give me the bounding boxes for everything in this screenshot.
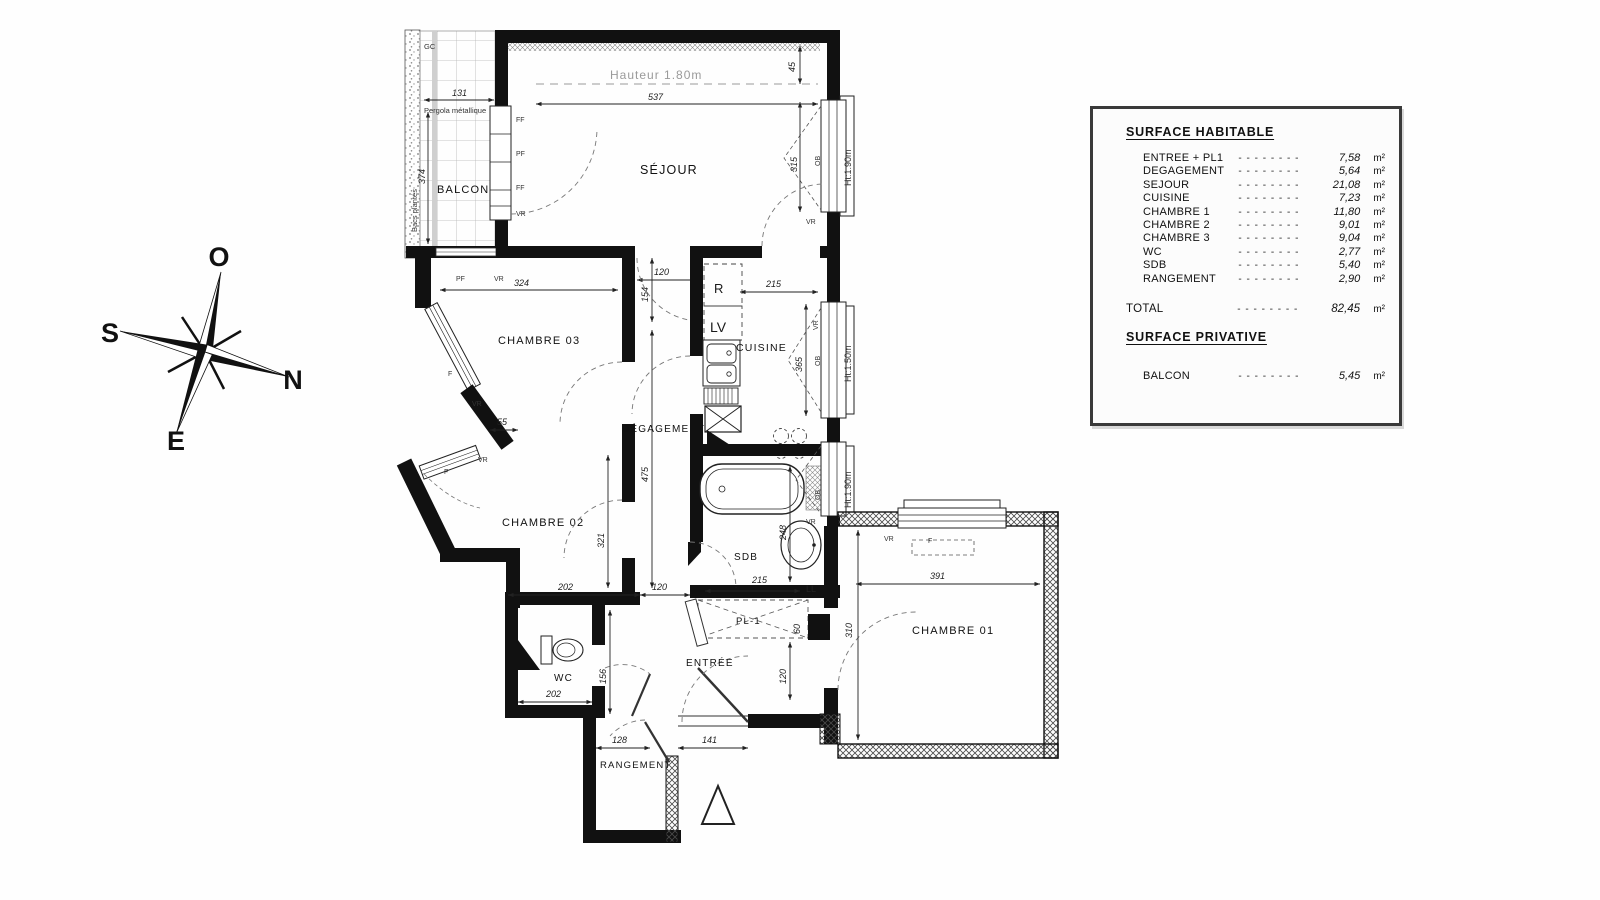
surface-rows: ENTREE + PL1- - - - - - - -7,58m² DEGAGE… [1143,152,1385,286]
area-unit: m² [1360,180,1385,191]
dim-entree-door: 141 [702,735,717,745]
leader-dashes: - - - - - - - - [1238,220,1323,231]
door-swing-arc [610,720,645,736]
entree-hall: ENTRÉE 120 141 PL-1 60 [678,599,838,824]
chambre03-label: CHAMBRE 03 [498,335,580,347]
surface-habitable-title: SURFACE HABITABLE [1126,125,1385,139]
dim-sdb-width: 215 [751,575,768,585]
area-value: 21,08 [1323,179,1360,191]
surface-table: SURFACE HABITABLE ENTREE + PL1- - - - - … [1090,106,1402,426]
dim-sejour-width: 537 [648,92,664,102]
room-name: CUISINE [1143,192,1238,204]
leader-dashes: - - - - - - - - [1238,371,1323,382]
window-height-label: Ht:1.90m [843,149,853,186]
table-row: CHAMBRE 2- - - - - - - -9,01m² [1143,219,1385,232]
rangement-room: RANGEMENT 128 [583,717,681,843]
balcony-label: BALCON [437,184,489,196]
leader-dashes: - - - - - - - - [1237,304,1322,315]
table-row: CUISINE- - - - - - - -7,23m² [1143,192,1385,205]
chambre03-angled-window [425,303,481,391]
dim-wc-height: 156 [598,669,608,684]
window-pf-label: PF [516,151,525,158]
window-ob-label: OB [815,356,822,366]
leader-dashes: - - - - - - - - [1238,180,1323,191]
compass-north-label: N [283,365,303,395]
total-label: TOTAL [1126,303,1237,315]
area-value: 11,80 [1323,206,1360,218]
area-unit: m² [1360,247,1385,258]
chambre01-window: VR F [884,500,1006,555]
sejour-label: SÉJOUR [640,162,698,177]
window-height-label: Ht:1.90m [843,471,853,508]
table-row: SDB- - - - - - - -5,40m² [1143,259,1385,272]
table-row: WC- - - - - - - -2,77m² [1143,246,1385,259]
compass-south-label: S [101,318,119,348]
washer-label: LL [806,584,816,594]
door-swing-arc [762,184,824,246]
window-vr-label: VR [478,457,488,464]
room-name: CHAMBRE 2 [1143,219,1238,231]
area-unit: m² [1360,371,1385,382]
door-swing-arc [511,128,597,214]
total-value: 82,45 [1323,303,1360,315]
fridge-label: R [714,281,723,296]
area-unit: m² [1360,193,1385,204]
planters-note: Bacs plantés [410,189,419,232]
dim-entree-height: 120 [778,669,788,684]
window-vr-label: VR [472,401,482,408]
leader-dashes: - - - - - - - - [1238,260,1323,271]
chambre02-label: CHAMBRE 02 [502,517,584,529]
chambre01-room: VR F 391 310 CHAMBRE 01 [820,500,1058,758]
dim-degagement-height: 475 [640,466,650,482]
room-name: SEJOUR [1143,179,1238,191]
door-swing-arc [560,362,622,424]
surface-privative-title: SURFACE PRIVATIVE [1126,330,1385,344]
dim-chambre01-height: 310 [844,623,854,638]
dim-pl1: 60 [792,624,802,634]
dim-rangement-width: 128 [612,735,627,745]
window-ff-label: FF [516,117,525,124]
room-name: DEGAGEMENT [1143,165,1238,177]
hauteur-note: Hauteur 1.80m [610,68,702,82]
window-pf-label: PF [456,276,465,283]
dim-cuisine-width: 215 [765,279,782,289]
room-name: ENTREE + PL1 [1143,152,1238,164]
area-unit: m² [1360,207,1385,218]
room-name: SDB [1143,259,1238,271]
window-f-label: F [448,371,452,378]
bathtub-icon [700,464,804,514]
area-unit: m² [1360,304,1385,315]
duct-icon [705,406,741,432]
area-value: 9,01 [1323,219,1360,231]
compass-rose-icon: O S N E [101,242,303,456]
table-row: CHAMBRE 1- - - - - - - -11,80m² [1143,206,1385,219]
window-vr-label: VR [494,276,504,283]
area-value: 5,64 [1323,165,1360,177]
door-leaf [632,674,650,716]
sejour-left-windows: FF PF FF VR [490,106,526,220]
duct-wedge-icon [518,640,540,670]
room-name: CHAMBRE 3 [1143,232,1238,244]
leader-dashes: - - - - - - - - [1238,153,1323,164]
dim-degagement-width: 120 [654,267,669,277]
balcony-area: GC 131 Pergola métallique 374 Bacs plant… [405,30,500,258]
window-ob-label: OB [815,156,822,166]
kitchen-sink-icon [703,340,740,386]
area-value: 7,58 [1323,152,1360,164]
chambre01-label: CHAMBRE 01 [912,625,994,637]
drainer-icon [704,388,738,404]
area-unit: m² [1360,233,1385,244]
dishwasher-label: LV [710,319,727,335]
window-f-label: F [928,538,932,545]
dim-chambre03-width: 324 [514,278,529,288]
dim-sejour-top: 45 [787,61,797,72]
area-unit: m² [1360,274,1385,285]
leader-dashes: - - - - - - - - [1238,233,1323,244]
area-value: 5,40 [1323,259,1360,271]
dim-chambre01-width: 391 [930,571,945,581]
area-unit: m² [1360,153,1385,164]
private-rows: BALCON- - - - - - - -5,45m² [1143,370,1385,383]
table-row: BALCON- - - - - - - -5,45m² [1143,370,1385,383]
rangement-label: RANGEMENT [600,760,672,771]
compass-west-label: O [208,242,229,272]
cuisine-label: CUISINE [736,342,787,354]
table-row: SEJOUR- - - - - - - -21,08m² [1143,179,1385,192]
area-value: 9,04 [1323,232,1360,244]
area-unit: m² [1360,166,1385,177]
window-ob-label: OB [815,490,822,500]
toilet-icon [541,636,583,664]
door-leaf [645,722,669,762]
area-unit: m² [1360,220,1385,231]
gc-note: GC [424,42,436,51]
room-name: WC [1143,246,1238,258]
pergola-note: Pergola métallique [424,106,486,115]
room-name: CHAMBRE 1 [1143,206,1238,218]
dim-cuisine-height: 365 [794,356,804,372]
room-name: BALCON [1143,370,1238,382]
compass-east-label: E [167,426,185,456]
pl1-closet: PL-1 60 [685,599,830,660]
total-row: TOTAL- - - - - - - -82,45m² [1126,303,1385,316]
door-swing-arc [632,356,690,414]
wc-room: WC 202 156 [505,605,650,718]
window-ff-label: FF [516,185,525,192]
entree-label: ENTRÉE [686,656,734,669]
window-vr-label: VR [884,536,894,543]
window-vr-label: VR [813,320,820,330]
area-value: 5,45 [1323,370,1360,382]
dim-balcony-height: 374 [417,169,427,184]
leader-dashes: - - - - - - - - [1238,166,1323,177]
table-row: DEGAGEMENT- - - - - - - -5,64m² [1143,165,1385,178]
table-row: ENTREE + PL1- - - - - - - -7,58m² [1143,152,1385,165]
window-vr-label: VR [516,211,526,218]
leader-dashes: - - - - - - - - [1238,247,1323,258]
dim-sdb-height: 248 [778,525,788,541]
window-vr-label: VR [806,219,816,226]
door-swing-arc [564,500,622,558]
door-leaf [698,668,748,722]
dim-chambre03-small: 55 [497,417,508,427]
entrance-arrow-icon [702,786,734,824]
leader-dashes: - - - - - - - - [1238,274,1323,285]
area-value: 2,77 [1323,246,1360,258]
window-vr-label: VR [806,519,816,526]
leader-dashes: - - - - - - - - [1238,193,1323,204]
dim-chambre02-width: 202 [557,582,573,592]
wc-label: WC [554,673,573,684]
pl1-label: PL-1 [736,616,761,627]
sdb-label: SDB [734,552,758,563]
dim-wc-width: 202 [545,689,561,699]
dim-balcony-width: 131 [452,88,467,98]
area-value: 2,90 [1323,273,1360,285]
dim-sejour-window: 315 [789,156,799,172]
room-name: RANGEMENT [1143,273,1238,285]
chambre02-angled-window [419,445,480,479]
window-height-label: Ht:1.50m [843,345,853,382]
chambre02-room: F VR CHAMBRE 02 321 202 [397,445,640,608]
window-f-label: F [444,469,448,476]
floorplan-page: O S N E GC 131 Pergola métallique 374 Ba… [0,0,1600,900]
table-row: CHAMBRE 3- - - - - - - -9,04m² [1143,232,1385,245]
sejour-room: FF PF FF VR OB Ht:1.90m VR 315 45 Hauteu… [490,30,854,302]
table-row: RANGEMENT- - - - - - - -2,90m² [1143,273,1385,286]
door-swing-arc [605,665,650,674]
area-value: 7,23 [1323,192,1360,204]
dim-degagement-bottom: 120 [652,582,667,592]
dim-chambre02-height: 321 [596,533,606,548]
leader-dashes: - - - - - - - - [1238,207,1323,218]
area-unit: m² [1360,260,1385,271]
